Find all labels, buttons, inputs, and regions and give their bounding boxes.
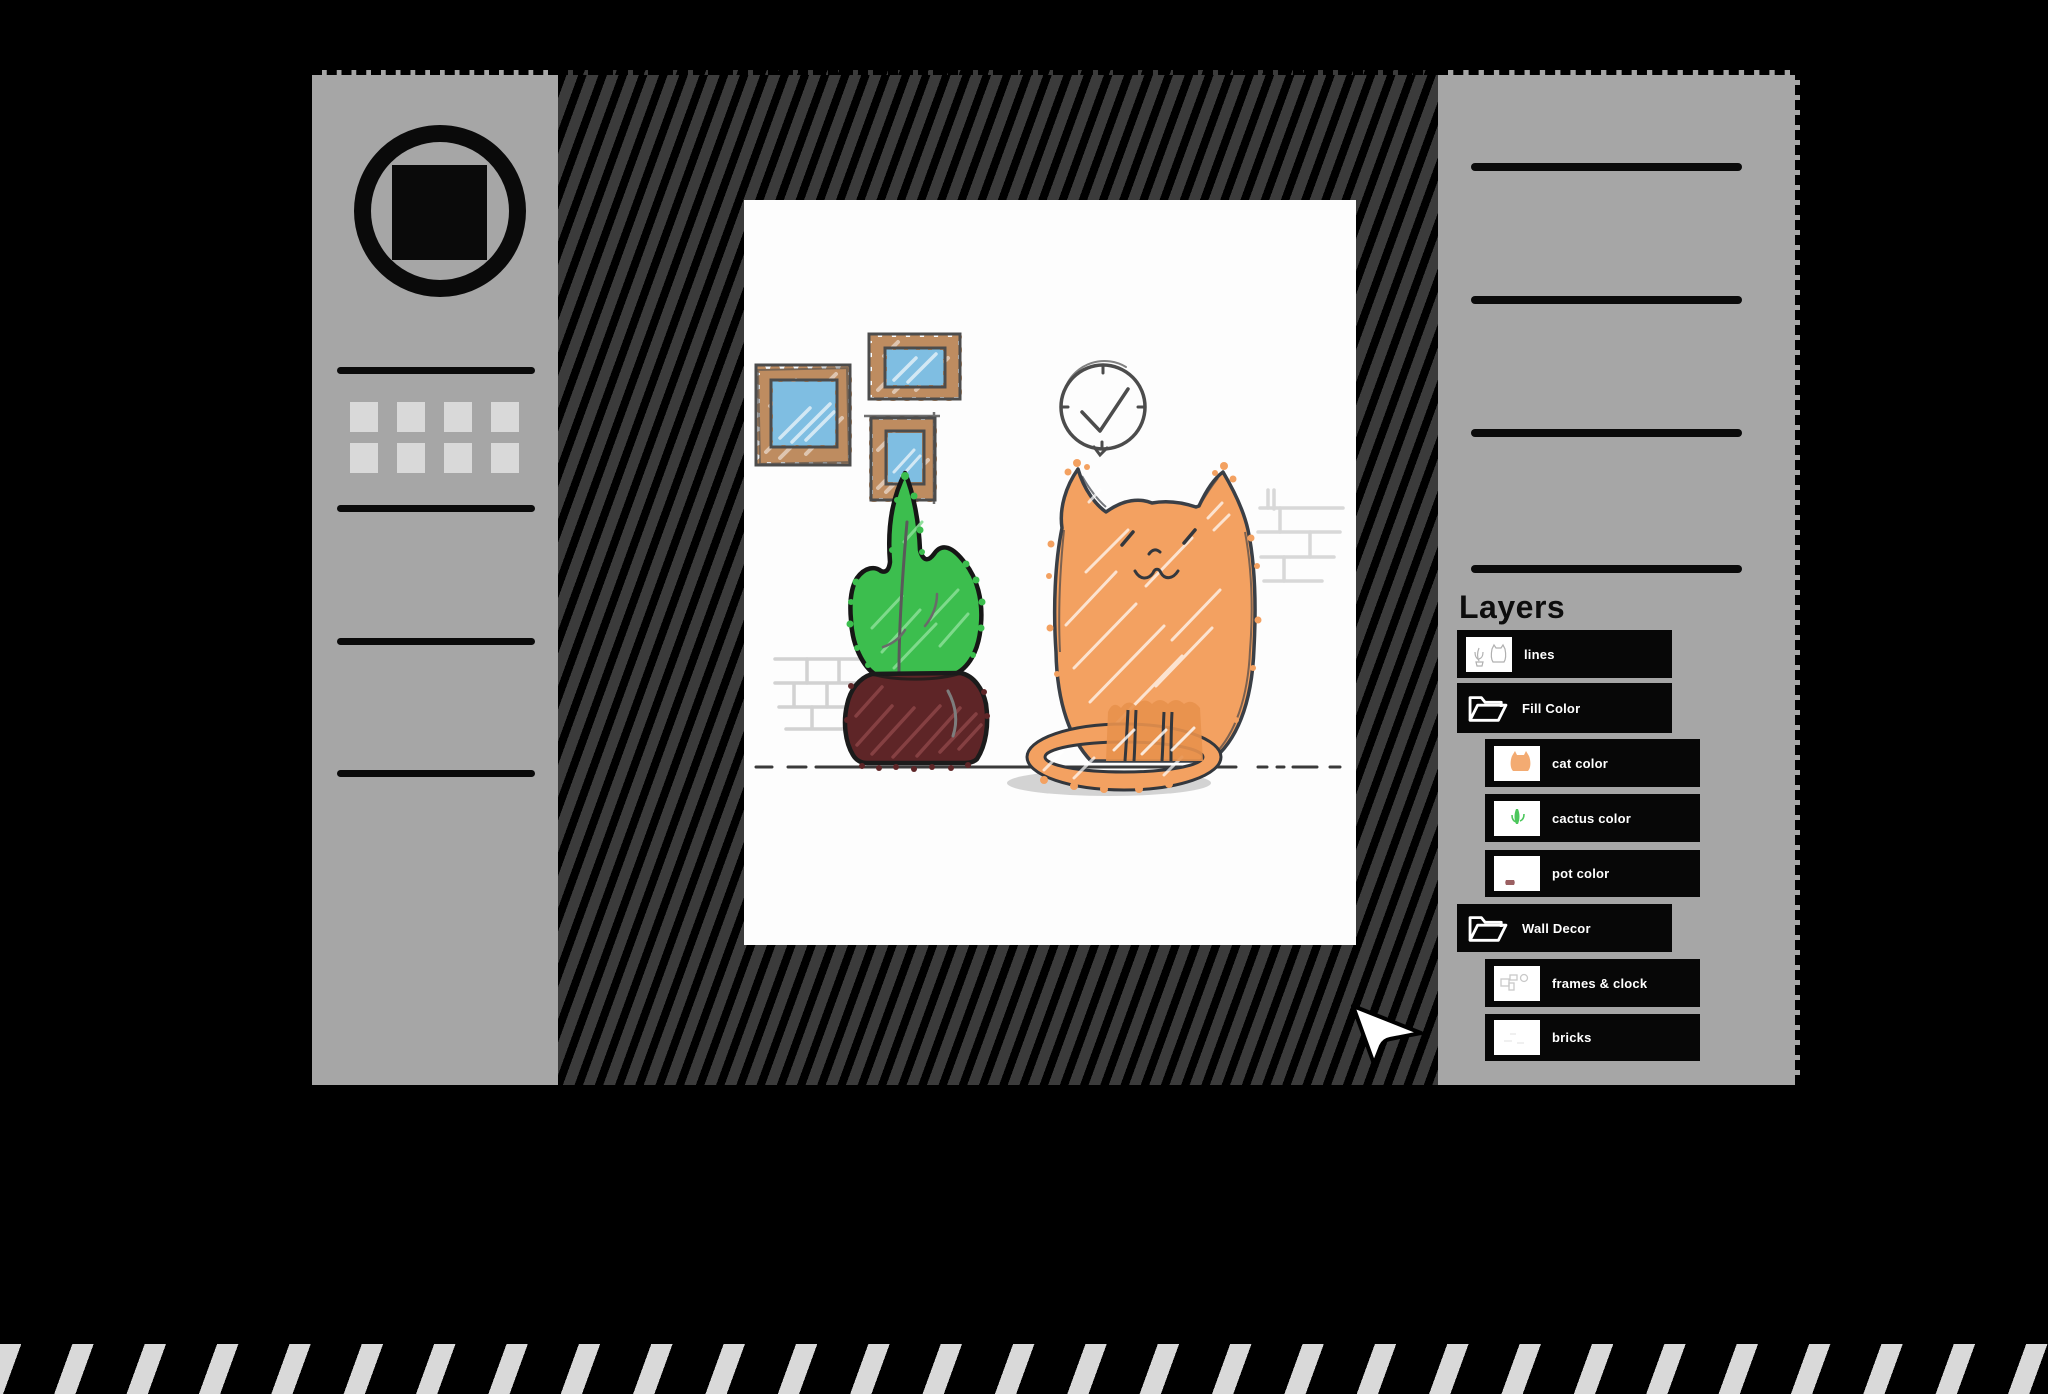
canvas-artwork	[744, 200, 1356, 945]
frames-and-clock-thumbnail	[1494, 966, 1540, 1001]
panel-separator	[1471, 565, 1742, 573]
toolbar-separator	[337, 505, 535, 512]
workspace	[558, 70, 1438, 1085]
layer-item-pot-color[interactable]: pot color	[1485, 850, 1700, 897]
tool-palette	[350, 402, 519, 473]
tool-button-8[interactable]	[491, 443, 519, 473]
tool-button-4[interactable]	[491, 402, 519, 432]
open-folder-icon	[1466, 691, 1510, 725]
layers-panel-title: Layers	[1459, 589, 1565, 626]
tool-button-3[interactable]	[444, 402, 472, 432]
layer-group-wall-decor[interactable]: Wall Decor	[1457, 904, 1672, 952]
layer-label: frames & clock	[1552, 976, 1647, 991]
app-window: Layers lines Fi	[312, 70, 1800, 1085]
toolbar-separator	[337, 638, 535, 645]
panel-separator	[1471, 296, 1742, 304]
layer-item-cat-color[interactable]: cat color	[1485, 739, 1700, 787]
maroon-pot-thumbnail	[1494, 856, 1540, 891]
desktop-background: Layers lines Fi	[0, 0, 2048, 1394]
tool-button-7[interactable]	[444, 443, 472, 473]
cursor-pointer-icon	[1350, 1003, 1426, 1069]
layers-panel: Layers lines Fi	[1438, 70, 1800, 1085]
tool-button-2[interactable]	[397, 402, 425, 432]
layer-label: lines	[1524, 647, 1555, 662]
toolbar-separator	[337, 367, 535, 374]
panel-separator	[1471, 429, 1742, 437]
app-logo-square	[392, 165, 487, 260]
tool-button-1[interactable]	[350, 402, 378, 432]
open-folder-icon	[1466, 911, 1510, 945]
layer-label: Fill Color	[1522, 701, 1580, 716]
sketch-outlines-thumbnail	[1466, 637, 1512, 672]
wall-clock	[1061, 361, 1145, 455]
layer-label: cat color	[1552, 756, 1608, 771]
toolbar-separator	[337, 770, 535, 777]
cat-legs	[1106, 700, 1203, 761]
brick-sketch-right	[1258, 490, 1343, 581]
layer-label: cactus color	[1552, 811, 1631, 826]
layer-group-fill-color[interactable]: Fill Color	[1457, 683, 1672, 733]
tool-button-5[interactable]	[350, 443, 378, 473]
faint-bricks-thumbnail	[1494, 1020, 1540, 1055]
bottom-stripe-decoration	[0, 1344, 2048, 1394]
green-cactus-thumbnail	[1494, 801, 1540, 836]
layer-item-frames-clock[interactable]: frames & clock	[1485, 959, 1700, 1007]
left-toolbar	[312, 70, 558, 1085]
layer-label: Wall Decor	[1522, 921, 1591, 936]
layer-label: bricks	[1552, 1030, 1592, 1045]
layer-label: pot color	[1552, 866, 1609, 881]
layer-item-bricks[interactable]: bricks	[1485, 1014, 1700, 1061]
layer-item-cactus-color[interactable]: cactus color	[1485, 794, 1700, 842]
plant-pot	[844, 673, 990, 772]
cat	[1007, 459, 1262, 796]
tool-button-6[interactable]	[397, 443, 425, 473]
picture-frame-large	[756, 365, 850, 465]
layer-item-lines[interactable]: lines	[1457, 630, 1672, 678]
panel-separator	[1471, 163, 1742, 171]
picture-frame-top	[869, 334, 960, 399]
orange-cat-thumbnail	[1494, 746, 1540, 781]
drawing-canvas[interactable]	[744, 200, 1356, 945]
